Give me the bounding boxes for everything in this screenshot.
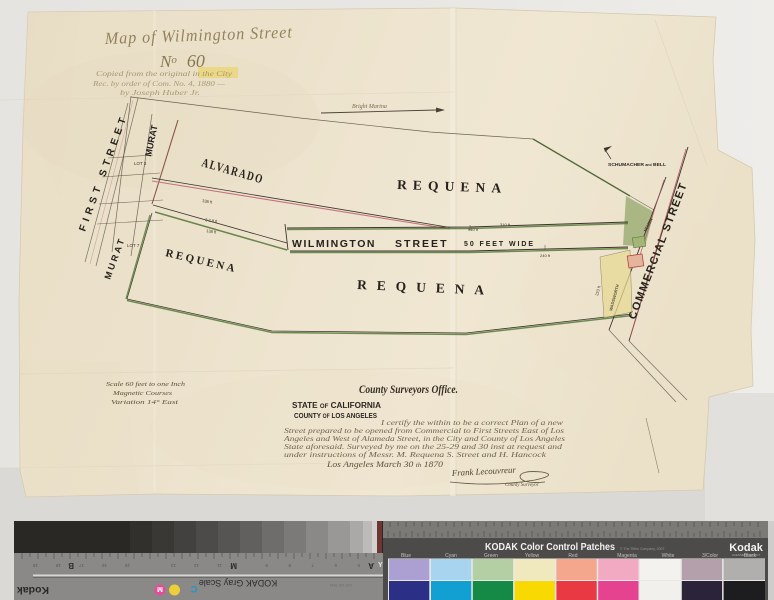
svg-text:Blue: Blue	[401, 553, 411, 559]
svg-text:Scale 60 feet to one Inch: Scale 60 feet to one Inch	[106, 381, 185, 388]
svg-text:I certify the within to be a c: I certify the within to be a correct Pla…	[380, 419, 564, 427]
svg-text:19: 19	[32, 563, 38, 568]
svg-text:Street prepared to be opened f: Street prepared to be opened from Commer…	[284, 427, 564, 435]
svg-text:SCHUMACHER and BELL: SCHUMACHER and BELL	[608, 162, 666, 168]
svg-text:A: A	[368, 561, 374, 570]
svg-text:B: B	[68, 561, 74, 570]
svg-text:Magnetic Courses: Magnetic Courses	[112, 390, 173, 397]
svg-text:under instructions of Messr. M: under instructions of Messr. M. Requena …	[284, 451, 547, 459]
svg-text:Y: Y	[378, 562, 383, 569]
svg-text:COUNTY OF LOS ANGELES: COUNTY OF LOS ANGELES	[294, 411, 377, 420]
svg-text:17: 17	[78, 563, 84, 568]
svg-text:Black: Black	[744, 553, 757, 559]
svg-text:LOT 7: LOT 7	[127, 243, 140, 248]
svg-text:Cyan: Cyan	[445, 553, 457, 559]
svg-text:3/Color: 3/Color	[702, 553, 718, 559]
svg-text:LOT 3: LOT 3	[134, 161, 147, 166]
svg-text:M: M	[230, 561, 237, 570]
svg-text:Red: Red	[568, 553, 577, 559]
svg-text:State aforesaid. Surveyed by: State aforesaid. Surveyed by me on the 2…	[284, 443, 563, 451]
svg-text:240 ft: 240 ft	[540, 253, 551, 258]
svg-text:WILMINGTON: WILMINGTON	[292, 238, 376, 250]
svg-text:M: M	[157, 585, 163, 592]
svg-text:CAT 152 7654: CAT 152 7654	[330, 583, 352, 587]
svg-text:13: 13	[170, 563, 176, 568]
svg-text:18: 18	[55, 563, 61, 568]
svg-text:Magenta: Magenta	[617, 553, 637, 559]
svg-text:by Joseph Huber Jr.: by Joseph Huber Jr.	[120, 88, 200, 97]
svg-text:STATE OF CALIFORNIA: STATE OF CALIFORNIA	[292, 401, 381, 410]
svg-text:STREET: STREET	[395, 238, 448, 250]
svg-text:Los Angeles March 30 th 1870: Los Angeles March 30 th 1870	[326, 460, 443, 469]
svg-text:C: C	[190, 583, 197, 594]
svg-text:15: 15	[124, 563, 130, 568]
svg-text:Angeles and West of Alameda St: Angeles and West of Alameda Street, in t…	[283, 435, 566, 443]
svg-text:Green: Green	[484, 553, 498, 559]
svg-text:KODAK Gray Scale: KODAK Gray Scale	[199, 578, 278, 588]
svg-text:12: 12	[193, 563, 199, 568]
svg-text:Bright Marina: Bright Marina	[352, 104, 387, 110]
svg-text:11: 11	[217, 563, 222, 568]
svg-text:16: 16	[101, 563, 107, 568]
svg-text:310 ft: 310 ft	[500, 222, 511, 227]
svg-text:KODAK Color Control Patches: KODAK Color Control Patches	[485, 542, 615, 553]
svg-text:Kodak: Kodak	[17, 584, 49, 596]
svg-text:Rec. by order of Com. No. 4, 1: Rec. by order of Com. No. 4, 1880 —	[92, 79, 226, 88]
svg-text:© The Tiffen Company, 2007: © The Tiffen Company, 2007	[620, 547, 664, 551]
svg-text:940 ft: 940 ft	[468, 227, 479, 232]
svg-text:Copied from the original in th: Copied from the original in the City	[96, 69, 233, 78]
svg-text:Yellow: Yellow	[525, 553, 540, 559]
svg-text:White: White	[662, 553, 675, 559]
svg-text:County Surveyor: County Surveyor	[505, 483, 539, 488]
svg-text:50 FEET WIDE: 50 FEET WIDE	[464, 241, 534, 248]
svg-text:Variation 14° East: Variation 14° East	[111, 399, 178, 406]
svg-text:County Surveyors Office.: County Surveyors Office.	[359, 382, 458, 396]
